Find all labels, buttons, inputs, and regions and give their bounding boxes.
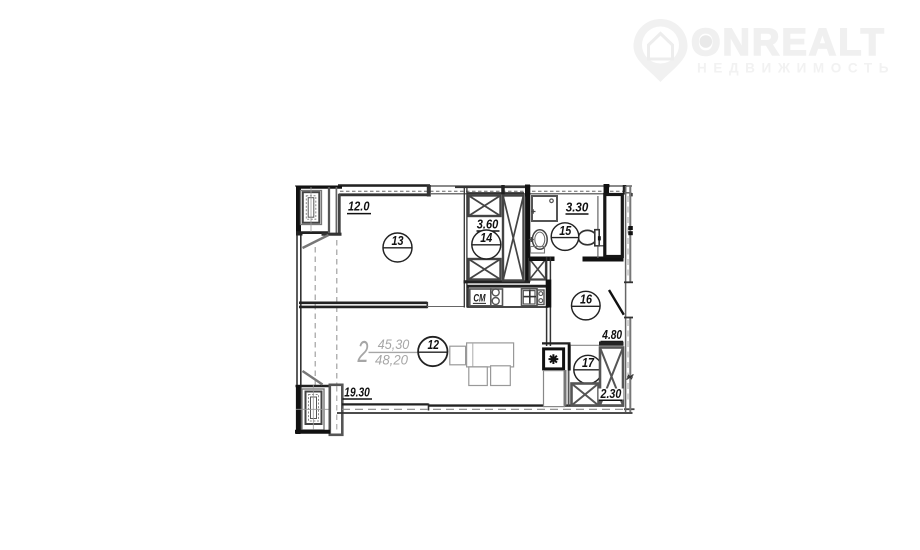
svg-text:48,20: 48,20 [375,352,408,368]
svg-text:19.30: 19.30 [344,386,370,400]
svg-text:12.0: 12.0 [348,200,370,214]
svg-text:13: 13 [392,234,404,248]
svg-text:15: 15 [559,224,572,238]
svg-text:3.30: 3.30 [566,201,589,215]
svg-text:4.80: 4.80 [601,328,622,342]
svg-text:НЕДВИЖИМОСТЬ: НЕДВИЖИМОСТЬ [697,61,895,76]
svg-text:17: 17 [582,356,595,370]
svg-text:12: 12 [428,338,440,352]
svg-text:45,30: 45,30 [378,336,410,352]
svg-text:ONREALT: ONREALT [691,22,886,64]
svg-text:2.30: 2.30 [600,387,622,401]
svg-text:СМ: СМ [473,292,486,304]
svg-text:16: 16 [580,293,593,307]
svg-text:2: 2 [357,334,369,369]
svg-text:14: 14 [480,231,492,245]
